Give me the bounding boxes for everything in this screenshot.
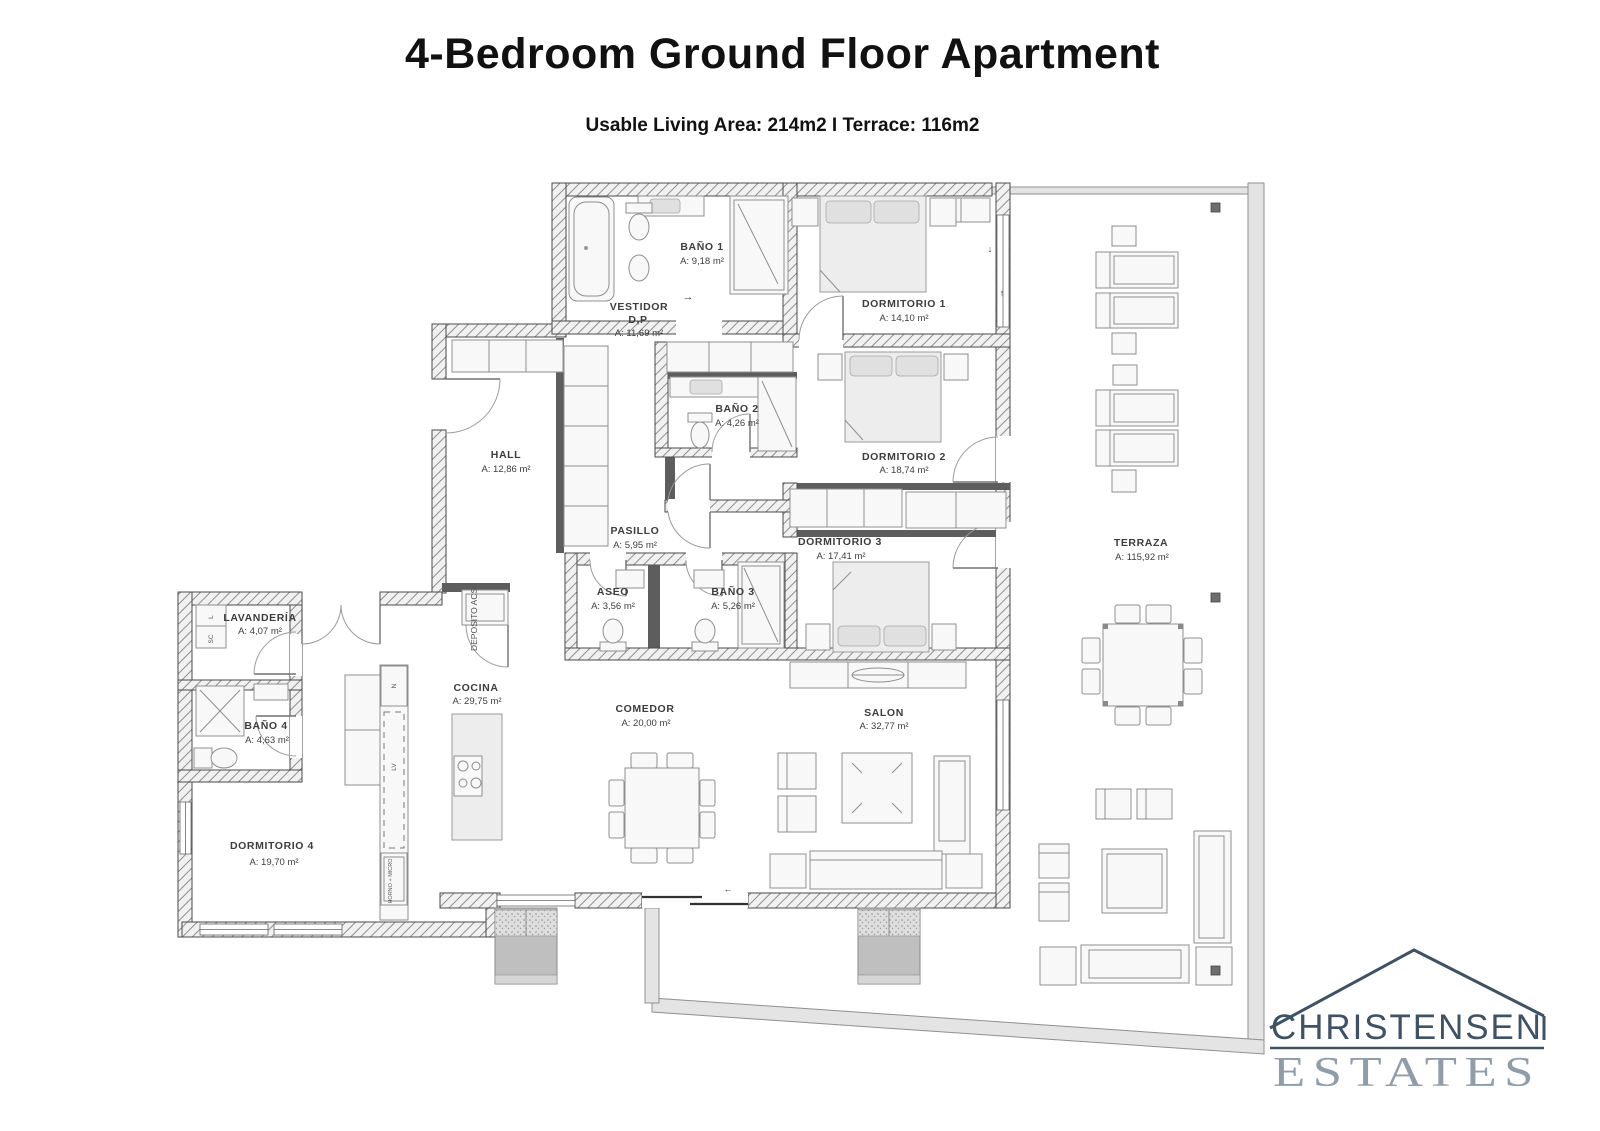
label-horno-micro: HORNO + MICRO [388, 858, 394, 904]
room-area-comedor: A: 20,00 m² [621, 718, 670, 729]
room-label-salon: SALON [864, 707, 904, 719]
room-label-dormitorio1: DORMITORIO 1 [862, 298, 946, 310]
arrow-up-window: ↑ [1000, 288, 1005, 298]
dining-set [609, 753, 715, 863]
room-area-hall: A: 12,86 m² [481, 464, 530, 475]
room-label-bano1: BAÑO 1 [680, 240, 723, 253]
room-label-dormitorio2: DORMITORIO 2 [862, 451, 946, 463]
room-area-bano1: A: 9,18 m² [680, 256, 724, 267]
label-lavavajillas: LV [391, 763, 398, 771]
room-area-aseo: A: 3,56 m² [591, 601, 635, 612]
room-area-bano4: A: 4,63 m² [245, 735, 289, 746]
terrace-furniture [1039, 226, 1232, 985]
brand-logo: CHRISTENSEN ESTATES [1268, 938, 1550, 1095]
room-sublabel-vestidor: D,P [628, 314, 647, 326]
room-label-pasillo: PASILLO [611, 525, 660, 537]
logo-graphic: CHRISTENSEN ESTATES [1268, 938, 1550, 1090]
room-area-pasillo: A: 5,95 m² [613, 540, 657, 551]
label-nevera: N [391, 683, 398, 688]
room-label-vestidor: VESTIDOR [610, 301, 668, 313]
room-area-lavanderia: A: 4,07 m² [238, 626, 282, 637]
arrow-down-window: ↓ [988, 244, 993, 254]
room-label-lavanderia: LAVANDERÍA [223, 611, 296, 624]
room-label-hall: HALL [491, 449, 521, 461]
arrow-right-slider: → [690, 897, 699, 907]
room-label-dormitorio3: DORMITORIO 3 [798, 536, 882, 548]
terrace-dining-set [1082, 605, 1202, 725]
logo-suffix: ESTATES [1273, 1050, 1541, 1090]
room-label-aseo: ASEO [597, 586, 629, 598]
arrow-left-salon: ← [724, 884, 733, 894]
room-area-bano3: A: 5,26 m² [711, 601, 755, 612]
room-area-cocina: A: 29,75 m² [452, 696, 501, 707]
living-room-furniture [770, 662, 982, 889]
room-area-dormitorio3: A: 17,41 m² [816, 551, 865, 562]
label-lavadora: L [208, 615, 215, 619]
bedroom-furniture [792, 196, 968, 652]
label-deposito-acs: DEPOSITO ACS [469, 588, 479, 651]
room-label-bano4: BAÑO 4 [244, 719, 287, 732]
room-area-salon: A: 32,77 m² [859, 721, 908, 732]
room-label-bano2: BAÑO 2 [715, 402, 758, 415]
terrace-lounge-set [1039, 789, 1232, 985]
room-area-dormitorio4: A: 19,70 m² [249, 857, 298, 868]
room-area-terraza: A: 115,92 m² [1115, 552, 1169, 563]
room-label-terraza: TERRAZA [1114, 537, 1168, 549]
room-label-comedor: COMEDOR [615, 703, 674, 715]
logo-name: CHRISTENSEN [1271, 1008, 1543, 1047]
room-area-bano2: A: 4,26 m² [715, 418, 759, 429]
room-area-dormitorio1: A: 14,10 m² [879, 313, 928, 324]
kitchen-island [452, 714, 502, 840]
kitchen-cabinet-column [380, 665, 408, 920]
room-area-vestidor: A: 11,69 m² [615, 328, 663, 339]
planters [495, 908, 920, 984]
page: 4-Bedroom Ground Floor Apartment Usable … [0, 0, 1600, 1131]
room-label-cocina: COCINA [453, 682, 498, 694]
label-secadora: SC [208, 634, 215, 643]
arrow-right-bano1: → [683, 291, 694, 303]
room-label-dormitorio4: DORMITORIO 4 [230, 840, 314, 852]
room-label-bano3: BAÑO 3 [711, 585, 754, 598]
room-area-dormitorio2: A: 18,74 m² [879, 465, 928, 476]
